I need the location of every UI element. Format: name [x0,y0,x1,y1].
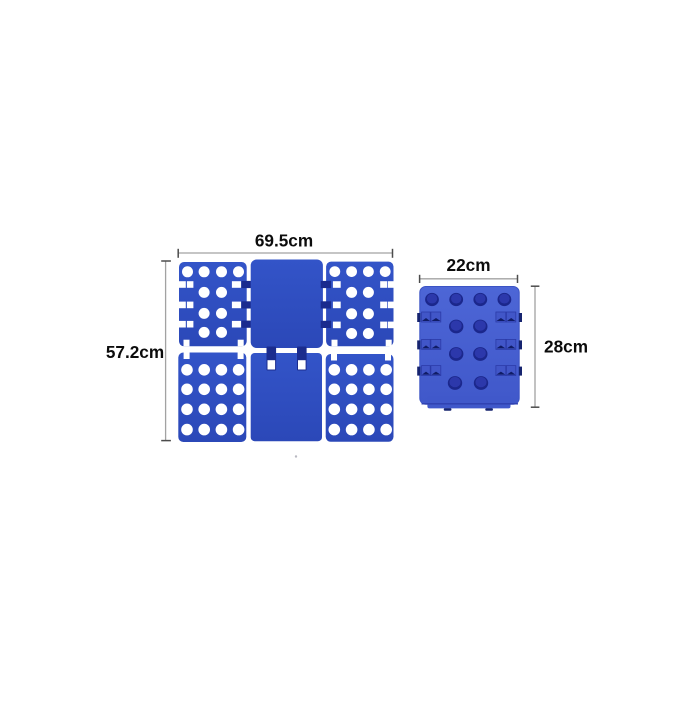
svg-text:57.2cm: 57.2cm [106,342,164,362]
svg-text:28cm: 28cm [544,337,588,357]
svg-text:22cm: 22cm [447,255,491,275]
svg-text:69.5cm: 69.5cm [255,231,313,251]
